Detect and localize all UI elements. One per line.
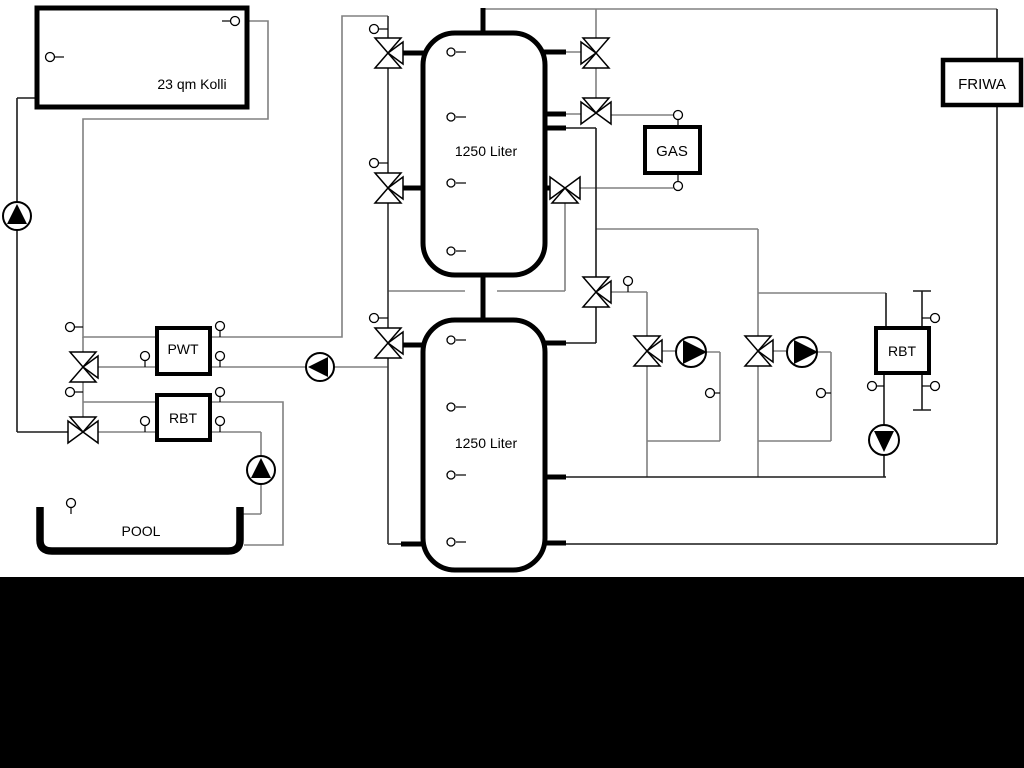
pump-heating-circuit-1 [676,337,707,367]
pump-heating-circuit-2 [787,337,818,367]
schematic-page: 23 qm Kolli 1250 Liter 1250 Liter PWT RB… [0,0,1024,768]
footer-black-band [0,577,1024,768]
friwa-label: FRIWA [958,76,1006,93]
pump-rbt-heating [869,425,899,455]
mixing-valve-tank-top-supply [581,38,609,68]
mixing-valve-circuit-feed [583,277,611,307]
mixing-valve-gas-return [550,177,580,203]
solar-collector-box [37,8,247,107]
rbt-pool-label: RBT [169,410,197,426]
mixing-valve-heating-circuit-2 [745,336,773,366]
mixing-valve-solar-top [375,38,403,68]
pump-pwt [306,353,334,381]
mixing-valve-solar-mid [375,173,403,203]
gas-label: GAS [656,143,688,160]
mixing-valve-pool [68,417,98,443]
pump-solar [3,202,31,230]
pool-label: POOL [122,523,161,539]
pump-pool [247,456,275,484]
mixing-valve-gas-supply [581,98,611,124]
rbt-heating-label: RBT [888,343,916,359]
pwt-label: PWT [167,341,199,357]
tank-bottom-label: 1250 Liter [455,435,518,451]
mixing-valve-heating-circuit-1 [634,336,662,366]
collector-label: 23 qm Kolli [157,76,226,92]
tank-top-label: 1250 Liter [455,143,518,159]
mixing-valve-solar-low [375,328,403,358]
mixing-valve-pwt [70,352,98,382]
hydraulic-schematic: 23 qm Kolli 1250 Liter 1250 Liter PWT RB… [0,0,1024,768]
